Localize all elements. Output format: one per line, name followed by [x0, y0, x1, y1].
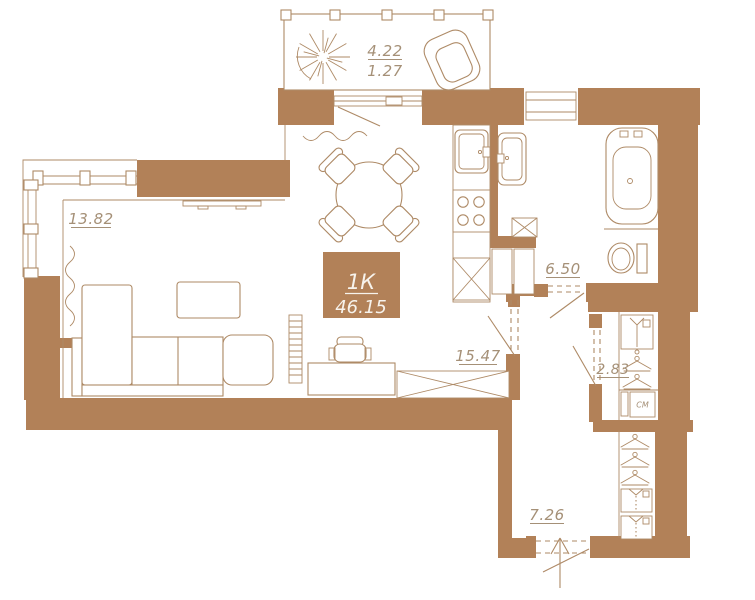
shirt-box-icon: [621, 516, 652, 539]
kitchen-living-area-label: 15.47: [455, 347, 500, 365]
living-room-area-label: 13.82: [68, 210, 113, 228]
balcony-area-label: 4.22: [367, 42, 402, 60]
sofa: [72, 285, 273, 396]
washing-machine: СМ: [619, 390, 658, 417]
closet-area-label: 2.83: [596, 362, 629, 378]
curtain-squiggle: [66, 246, 75, 326]
entrance-door: [536, 541, 590, 572]
apartment-type-label: 1К: [347, 270, 376, 294]
coffee-table: [177, 282, 240, 318]
storage-cabinet: [514, 249, 534, 294]
closet: СМ 2.83: [573, 312, 658, 420]
floor-plan-page: 4.22 1.27 13.82: [0, 0, 755, 600]
desk: [308, 337, 395, 395]
washbasin: [497, 133, 526, 185]
bathroom-window: [526, 92, 576, 120]
total-area-label: 46.15: [335, 297, 387, 318]
storage-cabinet: [492, 249, 512, 294]
hanger-icon: [621, 452, 649, 467]
washing-machine-label: СМ: [636, 401, 649, 410]
balcony-area-reduced-label: 1.27: [367, 62, 402, 80]
apartment-badge: 1К 46.15: [323, 252, 400, 318]
stove: [453, 190, 490, 232]
balcony: 4.22 1.27: [281, 10, 493, 94]
tv: [183, 201, 261, 209]
entrance-arrow: [551, 538, 569, 588]
hanger-icon: [621, 434, 649, 449]
kitchen-sink: [455, 130, 490, 173]
floor-plan-svg: 4.22 1.27 13.82: [0, 0, 755, 600]
toilet: [608, 243, 647, 273]
wardrobe-x: [397, 371, 509, 398]
ladder-shelf: [289, 315, 302, 383]
bathtub: [604, 128, 658, 229]
cabinet-x: [453, 258, 490, 300]
hallway-area-label: 7.26: [529, 506, 564, 524]
hanger-icon: [621, 470, 649, 485]
duct-x: [512, 218, 537, 237]
hallway: 7.26: [529, 430, 652, 588]
balcony-door: [334, 96, 422, 126]
bathroom-door: [548, 286, 584, 318]
kitchen-counter: [453, 125, 490, 302]
curtain-squiggle-top: [303, 132, 367, 141]
bathroom-area-label: 6.50: [545, 260, 580, 278]
shirt-box-icon: [621, 489, 652, 512]
dining-table: [317, 146, 420, 243]
shirt-shelf-icon: [621, 315, 653, 354]
